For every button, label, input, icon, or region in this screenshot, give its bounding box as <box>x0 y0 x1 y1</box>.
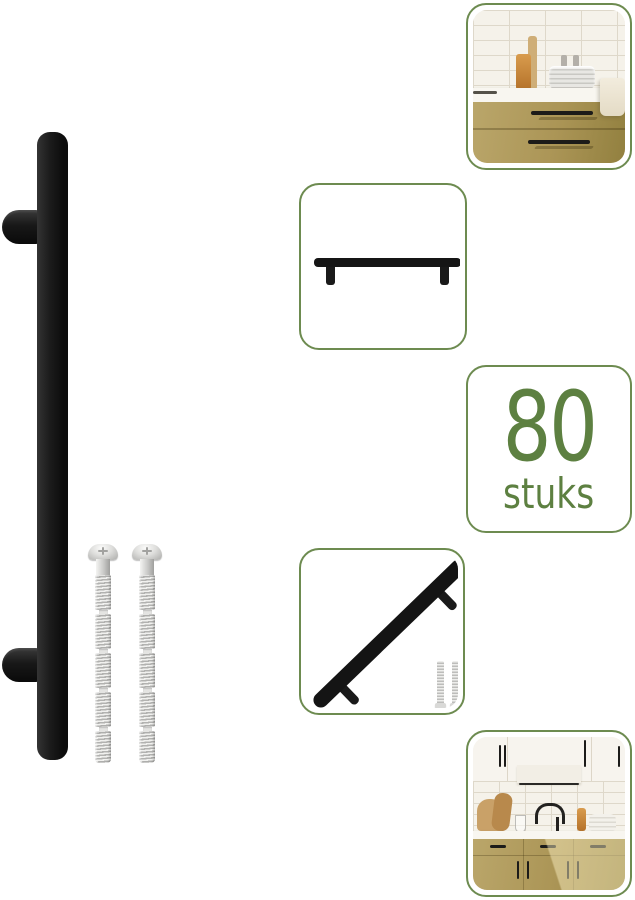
mini-screw <box>437 661 444 705</box>
handle-bar <box>37 132 68 760</box>
cabinet-handle <box>499 745 501 767</box>
handle-horizontal-photo <box>306 190 460 343</box>
thread-segment <box>95 653 111 688</box>
handle-bar <box>310 557 458 708</box>
utensil-bar <box>519 783 579 785</box>
handle-shadow <box>534 146 594 149</box>
screw-head <box>88 544 118 560</box>
handle-post <box>440 264 449 285</box>
cabinet-handle <box>584 740 586 767</box>
handle-post <box>326 264 335 285</box>
thread-segment <box>139 575 155 610</box>
quantity-number: 80 <box>503 383 596 471</box>
thumbnail-kitchen-full[interactable] <box>466 730 632 897</box>
countertop <box>473 831 625 839</box>
bottle <box>577 808 586 831</box>
kitchen-drawers-photo <box>473 10 625 163</box>
screw-head <box>132 544 162 560</box>
sunlight-patch <box>473 839 625 890</box>
drawer-handle <box>528 140 590 144</box>
mounting-screw-left <box>88 544 118 763</box>
handle-mount-post-top <box>2 210 40 244</box>
kitchen-full-photo <box>473 737 625 890</box>
thread-segment <box>139 731 155 763</box>
plate-stack <box>549 66 595 90</box>
hob-edge <box>473 91 497 94</box>
thread-segment <box>139 692 155 727</box>
screw-neck <box>140 559 154 576</box>
mini-screw-head <box>435 703 446 708</box>
amber-candle <box>516 54 531 90</box>
thread-segment <box>139 614 155 649</box>
lower-cabinets <box>473 839 625 890</box>
quantity-unit: stuks <box>503 473 594 515</box>
drawer-seam <box>473 128 625 130</box>
thread-segment <box>95 575 111 610</box>
range-hood <box>517 765 581 783</box>
thread-segment <box>95 614 111 649</box>
thread-segment <box>95 692 111 727</box>
product-gallery-image: 80 stuks <box>0 0 635 900</box>
handle-diagonal-photo <box>306 555 458 708</box>
cabinet-seam <box>507 737 508 781</box>
screw-neck <box>96 559 110 576</box>
faucet-arch <box>535 803 565 824</box>
faucet-body <box>556 817 559 831</box>
mini-screw-head <box>450 703 458 708</box>
quantity-badge[interactable]: 80 stuks <box>466 365 632 533</box>
main-product-photo <box>0 0 300 900</box>
diagonal-handle <box>310 557 458 708</box>
thread-segment <box>95 731 111 763</box>
towel <box>600 78 625 116</box>
mini-screw <box>452 661 458 705</box>
cabinet-handle <box>618 746 620 767</box>
thread-segment <box>139 653 155 688</box>
phillips-cross-icon <box>98 550 108 552</box>
screw-thread <box>139 575 155 763</box>
thumbnail-handle-horizontal[interactable] <box>299 183 467 350</box>
mounting-screw-right <box>132 544 162 763</box>
thumbnail-kitchen-drawers[interactable] <box>466 3 632 170</box>
cabinet-seam <box>591 737 592 781</box>
cabinet-handle <box>504 745 506 767</box>
faucet-spout <box>535 817 538 823</box>
handle-mount-post-bottom <box>2 648 40 682</box>
handle-shadow <box>538 117 598 120</box>
drawer-handle <box>531 111 593 115</box>
thumbnail-handle-diagonal[interactable] <box>299 548 465 715</box>
screw-thread <box>95 575 111 763</box>
handle-bar <box>314 258 460 267</box>
phillips-cross-icon <box>142 550 152 552</box>
cake-tin <box>589 814 616 831</box>
